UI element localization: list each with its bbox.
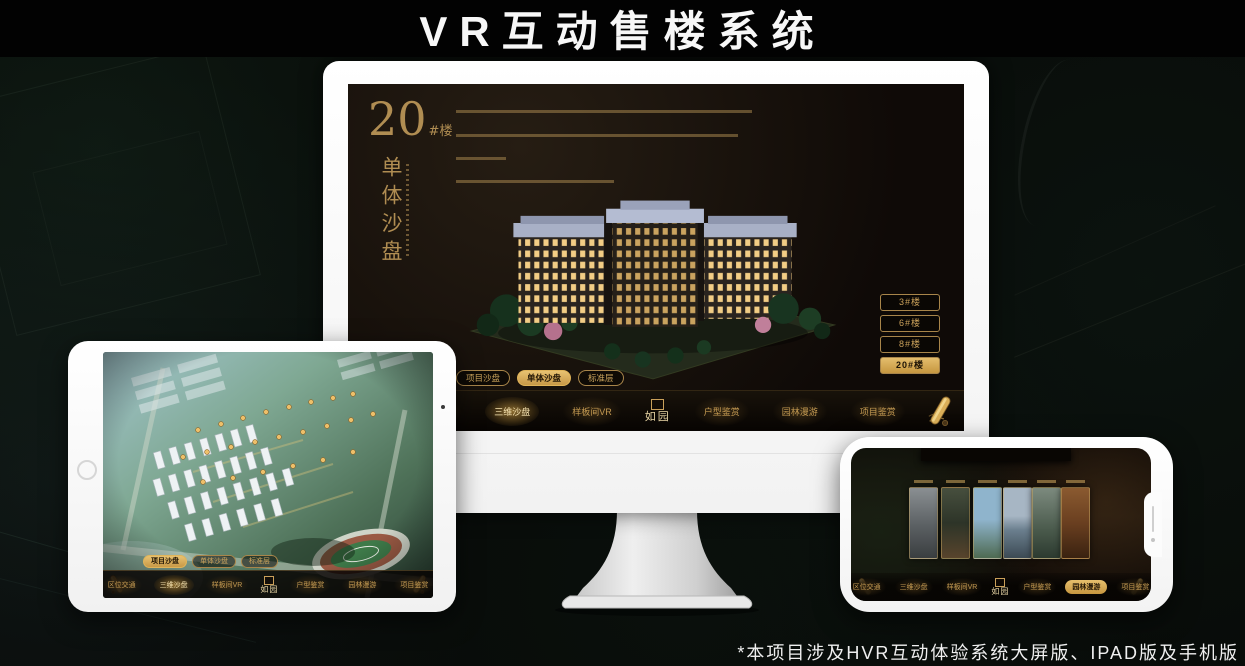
floor-button-8[interactable]: 8#楼 — [880, 336, 940, 353]
tab-project-sandbox[interactable]: 项目沙盘 — [143, 555, 187, 568]
brand-logo: 如园 — [645, 399, 671, 423]
logo-seal-icon — [264, 576, 274, 585]
ipad-device: 项目沙盘 单体沙盘 标准层 区位交通 三维沙盘 样板间VR 如园 户型鉴赏 园林… — [68, 341, 456, 612]
floor-button-3[interactable]: 3#楼 — [880, 294, 940, 311]
brand-logo: 如园 — [260, 576, 278, 594]
scene-panel-courtyard[interactable] — [909, 487, 938, 559]
phone-screen: 区位交通 三维沙盘 样板间VR 如园 户型鉴赏 园林漫游 项目鉴赏 — [851, 448, 1151, 601]
ceiling-beam — [921, 448, 1071, 461]
floor-button-20[interactable]: 20#楼 — [880, 357, 940, 374]
promo-canvas: VR互动售楼系统 20#楼 单体沙盘 — [0, 0, 1245, 666]
logo-seal-icon — [651, 399, 664, 410]
ipad-bottom-nav: 区位交通 三维沙盘 样板间VR 如园 户型鉴赏 园林漫游 项目鉴赏 — [103, 570, 433, 598]
tab-standard-floor[interactable]: 标准层 — [241, 555, 278, 568]
page-title: VR互动售楼系统 — [419, 0, 825, 59]
sandbox-subtabs: 项目沙盘 单体沙盘 标准层 — [456, 370, 624, 386]
scene-panel-lobby[interactable] — [941, 487, 970, 559]
nav-item-project-gallery[interactable]: 项目鉴赏 — [394, 575, 433, 595]
ipad-screen: 项目沙盘 单体沙盘 标准层 区位交通 三维沙盘 样板间VR 如园 户型鉴赏 园林… — [103, 352, 433, 598]
nav-item-garden-tour[interactable]: 园林漫游 — [1065, 580, 1107, 594]
section-subtitle-english — [406, 164, 409, 256]
ipad-home-button[interactable] — [77, 460, 97, 480]
description-line — [456, 157, 506, 160]
nav-item-unit-plans[interactable]: 户型鉴赏 — [1018, 578, 1056, 596]
logo-text: 如园 — [645, 412, 671, 423]
building-number: 20 — [368, 92, 427, 146]
phone-camera-icon — [1151, 538, 1155, 542]
nav-item-project-gallery[interactable]: 项目鉴赏 — [1116, 578, 1151, 596]
tab-single-sandbox[interactable]: 单体沙盘 — [517, 370, 571, 386]
phone-notch — [1144, 492, 1162, 557]
nav-item-garden-tour[interactable]: 园林漫游 — [342, 575, 382, 595]
description-line — [456, 110, 752, 113]
nav-item-3d-sandbox[interactable]: 三维沙盘 — [895, 578, 933, 596]
scene-panel-landscape[interactable] — [1032, 487, 1061, 559]
scene-panel-garden[interactable] — [973, 487, 1002, 559]
title-band: VR互动售楼系统 — [0, 0, 1245, 57]
floor-button-group: 3#楼 6#楼 8#楼 20#楼 — [880, 294, 940, 374]
nav-item-3d-sandbox[interactable]: 三维沙盘 — [154, 575, 194, 595]
brand-logo: 如园 — [991, 578, 1009, 596]
nav-item-garden-tour[interactable]: 园林漫游 — [773, 397, 827, 426]
logo-seal-icon — [995, 578, 1005, 587]
nav-item-location[interactable]: 区位交通 — [851, 578, 886, 596]
ipad-camera-icon — [441, 405, 445, 409]
nav-item-showroom-vr[interactable]: 样板间VR — [942, 578, 983, 596]
nav-item-unit-plans[interactable]: 户型鉴赏 — [695, 397, 749, 426]
building-3d-model[interactable] — [458, 170, 848, 384]
tab-single-sandbox[interactable]: 单体沙盘 — [192, 555, 236, 568]
footnote-text: *本项目涉及HVR互动体验系统大屏版、IPAD版及手机版 — [737, 639, 1239, 665]
scene-panel-interior[interactable] — [1061, 487, 1090, 559]
nav-item-location[interactable]: 区位交通 — [103, 575, 142, 595]
ipad-sandbox-subtabs: 项目沙盘 单体沙盘 标准层 — [143, 555, 278, 568]
logo-text: 如园 — [991, 588, 1009, 596]
tab-standard-floor[interactable]: 标准层 — [578, 370, 624, 386]
section-title-vertical: 单体沙盘 — [376, 156, 406, 268]
phone-device: 区位交通 三维沙盘 样板间VR 如园 户型鉴赏 园林漫游 项目鉴赏 — [840, 437, 1173, 612]
nav-item-showroom-vr[interactable]: 样板间VR — [563, 397, 621, 426]
nav-item-project-gallery[interactable]: 项目鉴赏 — [851, 397, 905, 426]
phone-bottom-nav: 区位交通 三维沙盘 样板间VR 如园 户型鉴赏 园林漫游 项目鉴赏 — [851, 573, 1151, 601]
nav-item-unit-plans[interactable]: 户型鉴赏 — [290, 575, 330, 595]
scroll-icon[interactable] — [927, 393, 954, 428]
tab-project-sandbox[interactable]: 项目沙盘 — [456, 370, 510, 386]
floor-button-6[interactable]: 6#楼 — [880, 315, 940, 332]
scene-panel-building[interactable] — [1003, 487, 1032, 559]
nav-item-3d-sandbox[interactable]: 三维沙盘 — [485, 397, 539, 426]
description-line — [456, 134, 738, 137]
building-number-suffix: #楼 — [429, 124, 453, 139]
logo-text: 如园 — [260, 586, 278, 594]
phone-speaker-icon — [1152, 506, 1154, 532]
building-number-heading: 20#楼 — [368, 96, 452, 142]
monitor-stand — [540, 506, 774, 618]
nav-item-showroom-vr[interactable]: 样板间VR — [206, 575, 249, 595]
